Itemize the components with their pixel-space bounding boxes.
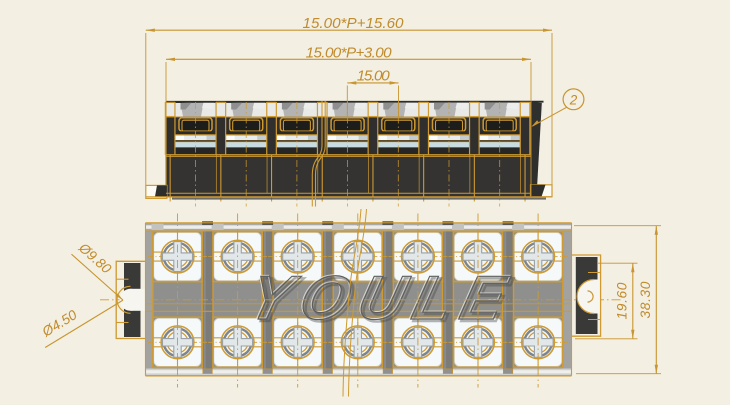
- svg-text:YOULE: YOULE: [242, 264, 519, 333]
- svg-text:19.60: 19.60: [614, 282, 629, 319]
- svg-text:15.00: 15.00: [357, 68, 391, 85]
- svg-text:15.00*P+15.60: 15.00*P+15.60: [303, 15, 405, 32]
- svg-text:38.30: 38.30: [638, 281, 653, 318]
- svg-text:15.00*P+3.00: 15.00*P+3.00: [306, 44, 393, 61]
- svg-text:2: 2: [569, 92, 578, 107]
